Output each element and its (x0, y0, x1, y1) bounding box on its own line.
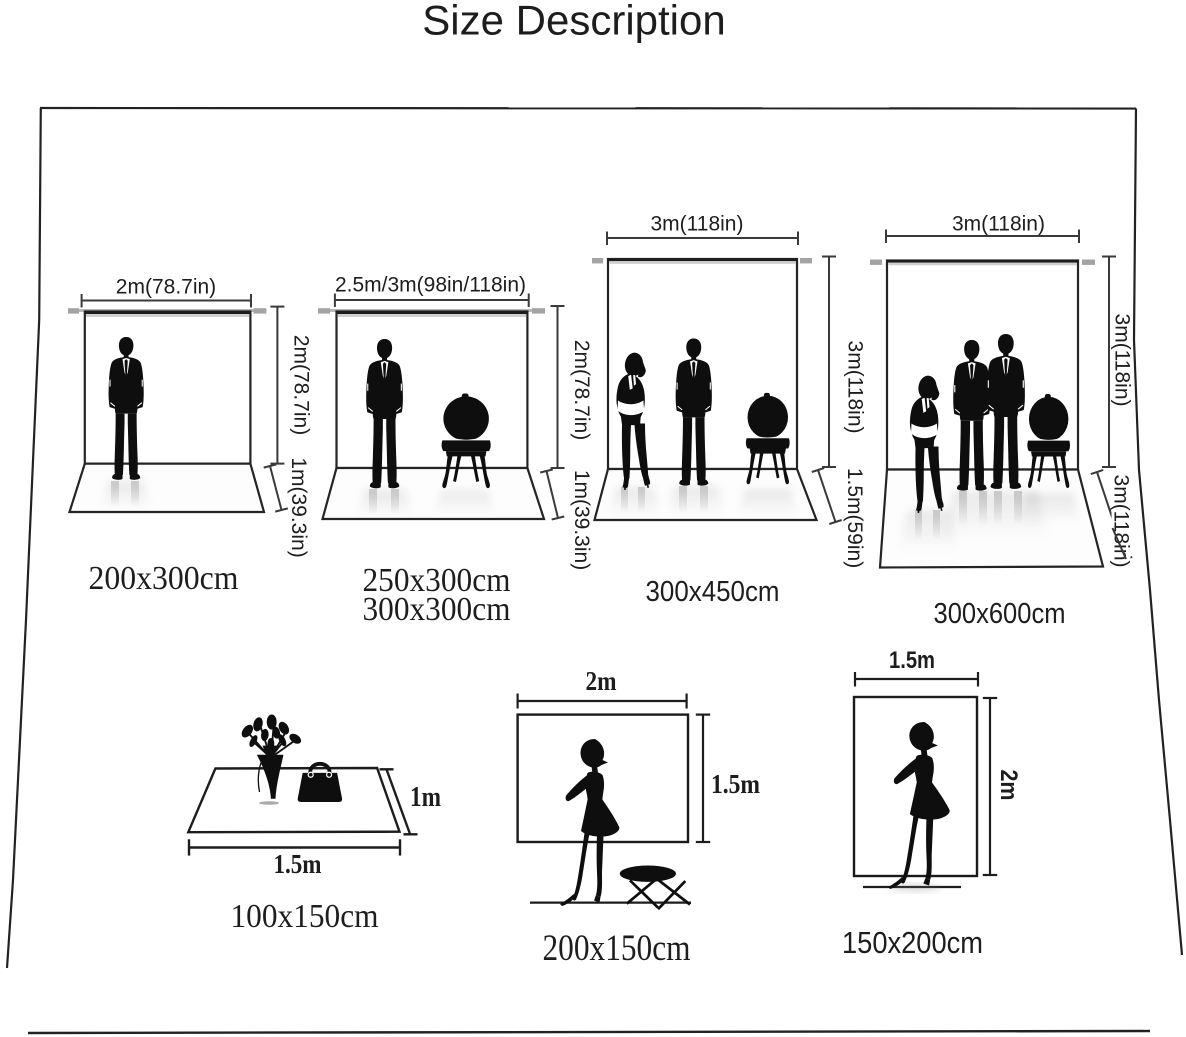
svg-text:2m: 2m (586, 666, 617, 696)
svg-text:1m(39.3in): 1m(39.3in) (287, 457, 310, 557)
svg-text:2m: 2m (995, 770, 1022, 801)
svg-text:1.5m: 1.5m (711, 769, 760, 799)
svg-text:3m(118in): 3m(118in) (1111, 314, 1134, 407)
svg-text:2m(78.7in): 2m(78.7in) (290, 335, 313, 435)
svg-text:200x150cm: 200x150cm (543, 928, 691, 969)
svg-text:3m(118in): 3m(118in) (952, 213, 1045, 236)
svg-text:2.5m/3m(98in/118in): 2.5m/3m(98in/118in) (335, 274, 526, 297)
svg-text:2m(78.7in): 2m(78.7in) (116, 276, 216, 299)
svg-text:300x450cm: 300x450cm (646, 576, 780, 608)
svg-text:1m(39.3in): 1m(39.3in) (570, 470, 593, 570)
svg-text:3m(118in): 3m(118in) (651, 213, 744, 236)
svg-text:200x300cm: 200x300cm (89, 560, 239, 597)
svg-text:3m(118in): 3m(118in) (1110, 475, 1133, 568)
svg-text:2m(78.7in): 2m(78.7in) (570, 340, 593, 440)
svg-text:Size Description: Size Description (422, 0, 725, 44)
svg-text:3m(118in): 3m(118in) (844, 341, 867, 434)
svg-text:300x300cm: 300x300cm (363, 591, 511, 628)
svg-text:1.5m: 1.5m (274, 849, 322, 879)
svg-text:100x150cm: 100x150cm (231, 898, 379, 935)
svg-text:300x600cm: 300x600cm (934, 598, 1066, 630)
svg-text:1.5m(59in): 1.5m(59in) (843, 468, 866, 568)
svg-text:1m: 1m (410, 781, 441, 813)
svg-text:150x200cm: 150x200cm (842, 925, 983, 960)
svg-text:1.5m: 1.5m (889, 647, 935, 674)
